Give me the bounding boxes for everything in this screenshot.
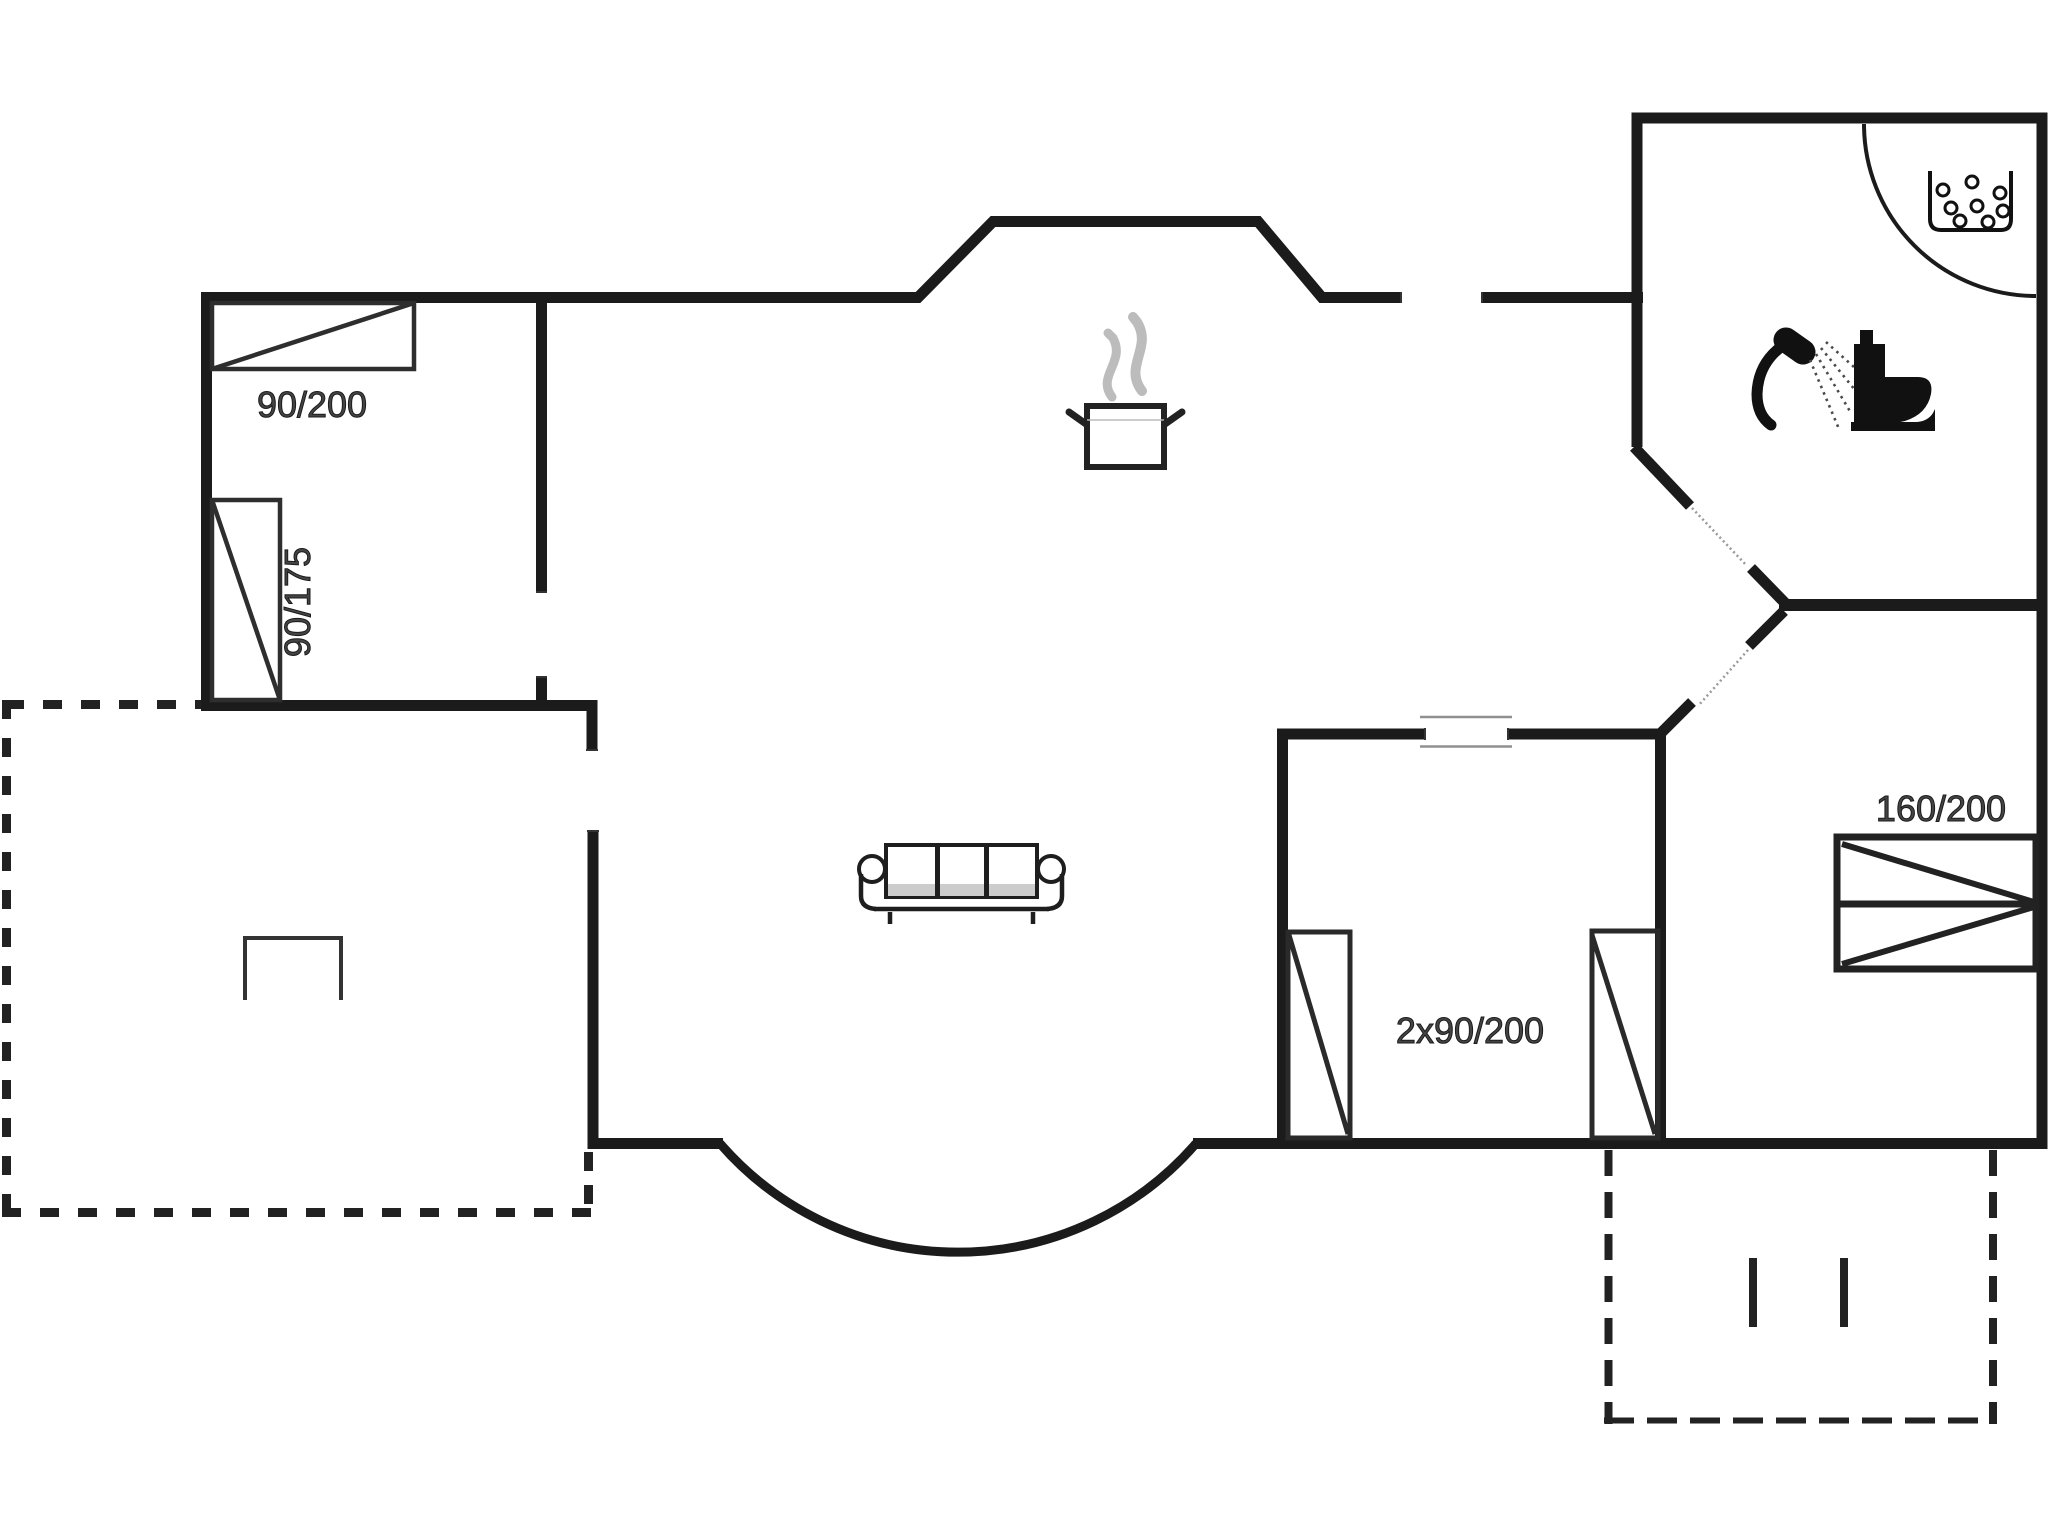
svg-text:90/200: 90/200	[257, 384, 367, 425]
svg-text:160/200: 160/200	[1876, 788, 2006, 829]
svg-text:90/175: 90/175	[277, 547, 318, 657]
svg-text:2x90/200: 2x90/200	[1396, 1010, 1544, 1051]
